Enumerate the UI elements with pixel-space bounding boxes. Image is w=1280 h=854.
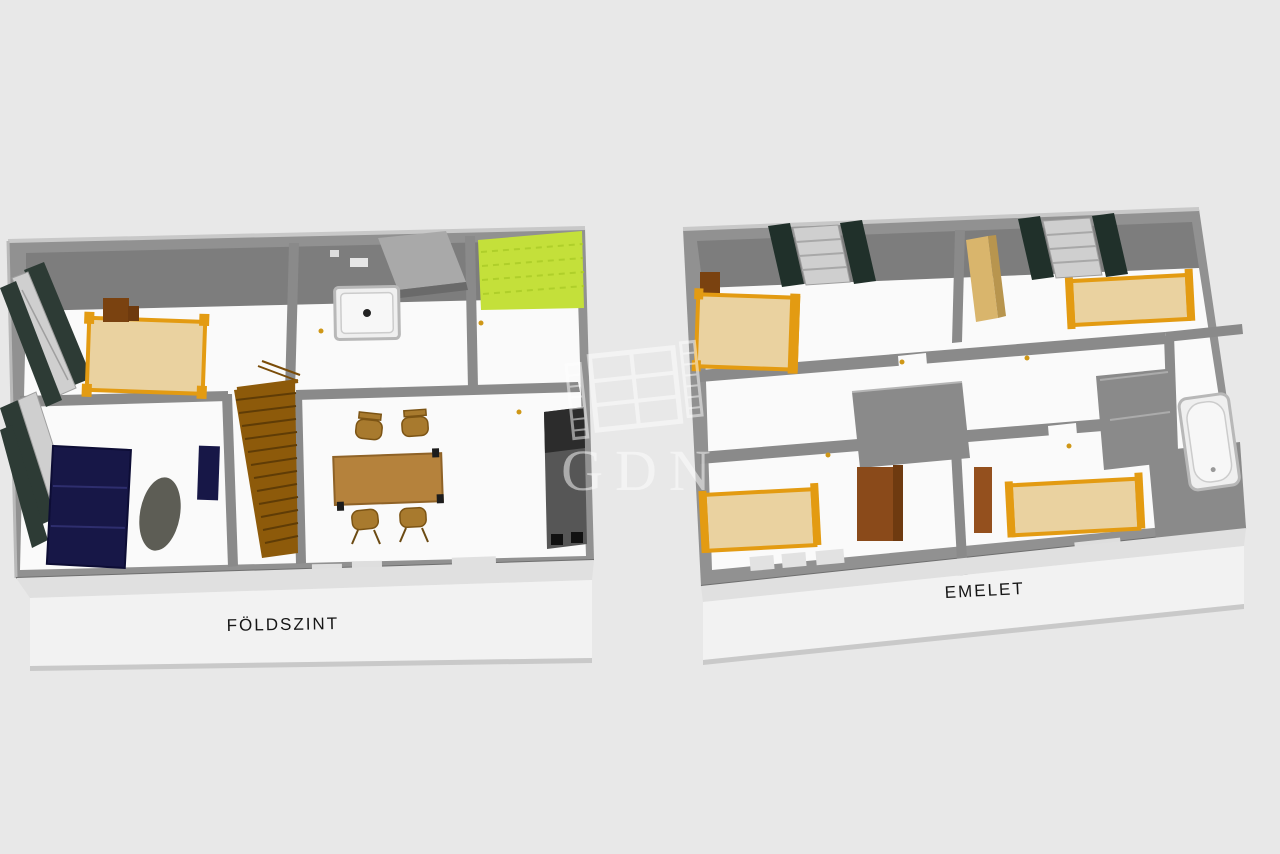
upper-floor-plan: EMELET [683, 209, 1246, 665]
door-handle [479, 321, 484, 326]
watermark-text: GDN [561, 438, 723, 503]
wall-sink [350, 258, 368, 267]
window-blinds [1018, 213, 1128, 280]
window-blinds [768, 220, 876, 287]
dining-table [333, 448, 444, 511]
shower-tray [335, 286, 400, 339]
bed-ground-bedroom [82, 310, 210, 401]
floor-plan-image: FÖLDSZINT [0, 0, 1280, 854]
green-floor [478, 231, 584, 310]
door-handle [517, 410, 522, 415]
door-handle [319, 329, 324, 334]
wall-mirror [330, 250, 339, 257]
bed-bedroom1 [692, 288, 801, 375]
armchair [197, 446, 220, 501]
floor-plan-render-canvas: FÖLDSZINT [0, 0, 1280, 854]
wardrobe-side [893, 465, 903, 541]
door-handle [1067, 444, 1072, 449]
door-handle [900, 360, 905, 365]
door-handle [1025, 356, 1030, 361]
ground-floor-label: FÖLDSZINT [227, 614, 340, 635]
bathtub [1178, 393, 1240, 491]
ground-floor-plan: FÖLDSZINT [0, 228, 594, 671]
door-handle [826, 453, 831, 458]
wardrobe-narrow [974, 467, 992, 533]
corner-sofa [47, 446, 131, 568]
